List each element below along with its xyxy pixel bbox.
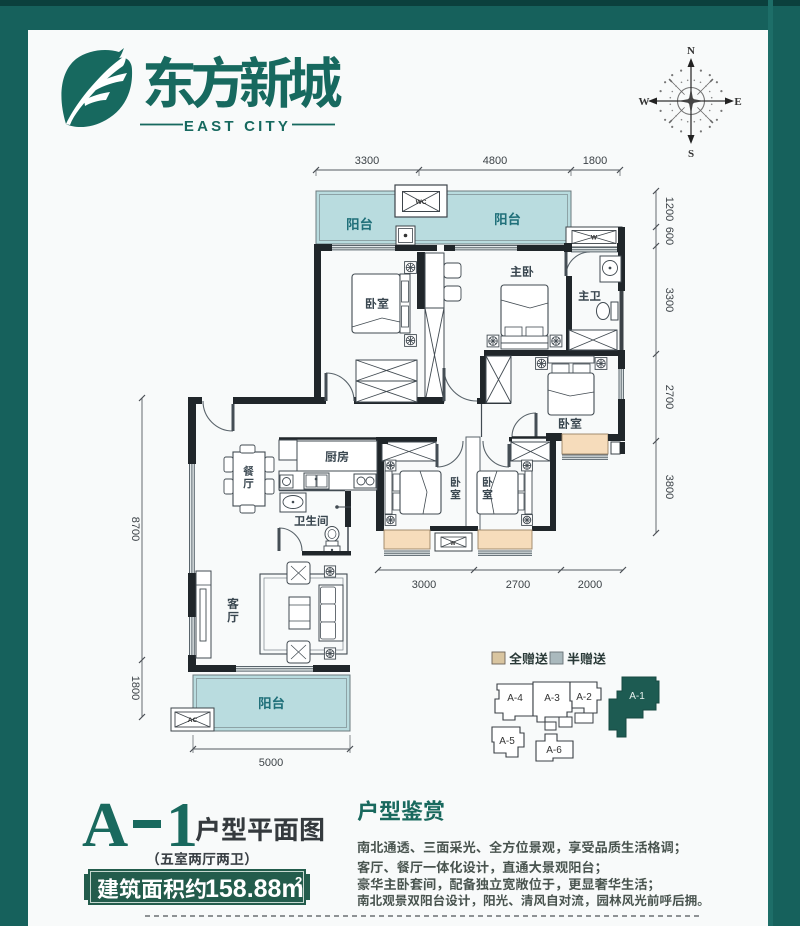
svg-text:3300: 3300 bbox=[663, 288, 675, 312]
svg-text:5000: 5000 bbox=[259, 757, 283, 769]
svg-text:AC: AC bbox=[188, 717, 198, 724]
svg-text:3800: 3800 bbox=[663, 475, 675, 499]
svg-text:1800: 1800 bbox=[583, 155, 607, 167]
svg-text:4800: 4800 bbox=[483, 155, 507, 167]
svg-text:2700: 2700 bbox=[663, 385, 675, 409]
svg-text:8700: 8700 bbox=[129, 517, 141, 541]
svg-text:158.88m: 158.88m bbox=[205, 875, 304, 903]
svg-text:A-5: A-5 bbox=[499, 736, 515, 747]
svg-text:A-1: A-1 bbox=[629, 691, 645, 702]
svg-text:A-3: A-3 bbox=[544, 693, 560, 704]
svg-text:A-2: A-2 bbox=[576, 692, 592, 703]
svg-text:A: A bbox=[82, 789, 128, 860]
svg-text:S: S bbox=[688, 148, 694, 160]
svg-text:A-4: A-4 bbox=[507, 693, 523, 704]
svg-text:A-6: A-6 bbox=[546, 745, 562, 756]
svg-text:2700: 2700 bbox=[506, 579, 530, 591]
svg-text:EAST CITY: EAST CITY bbox=[184, 118, 291, 135]
svg-text:1200: 1200 bbox=[663, 197, 675, 221]
svg-text:W: W bbox=[639, 96, 650, 108]
svg-text:2000: 2000 bbox=[578, 579, 602, 591]
svg-text:E: E bbox=[734, 96, 741, 108]
svg-text:1: 1 bbox=[166, 789, 198, 860]
svg-text:2: 2 bbox=[295, 874, 302, 889]
svg-text:3000: 3000 bbox=[412, 579, 436, 591]
svg-text:WC: WC bbox=[416, 199, 427, 206]
svg-text:W: W bbox=[450, 541, 456, 547]
svg-text:3300: 3300 bbox=[355, 155, 379, 167]
svg-text:W: W bbox=[591, 235, 598, 242]
svg-text:1800: 1800 bbox=[129, 676, 141, 700]
svg-text:600: 600 bbox=[663, 227, 675, 245]
svg-text:N: N bbox=[687, 45, 695, 57]
